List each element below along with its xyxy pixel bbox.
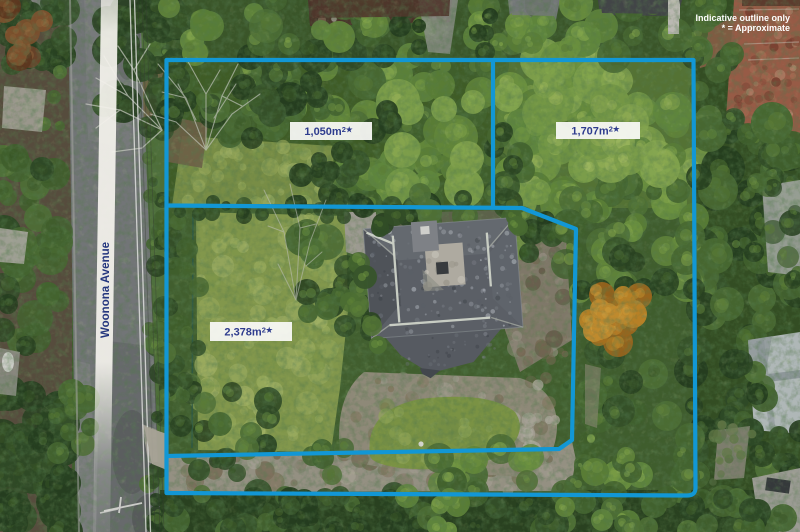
svg-text:* = Approximate: * = Approximate xyxy=(722,23,790,33)
svg-text:Indicative outline only: Indicative outline only xyxy=(695,13,790,23)
svg-text:Woonona Avenue: Woonona Avenue xyxy=(100,242,112,338)
